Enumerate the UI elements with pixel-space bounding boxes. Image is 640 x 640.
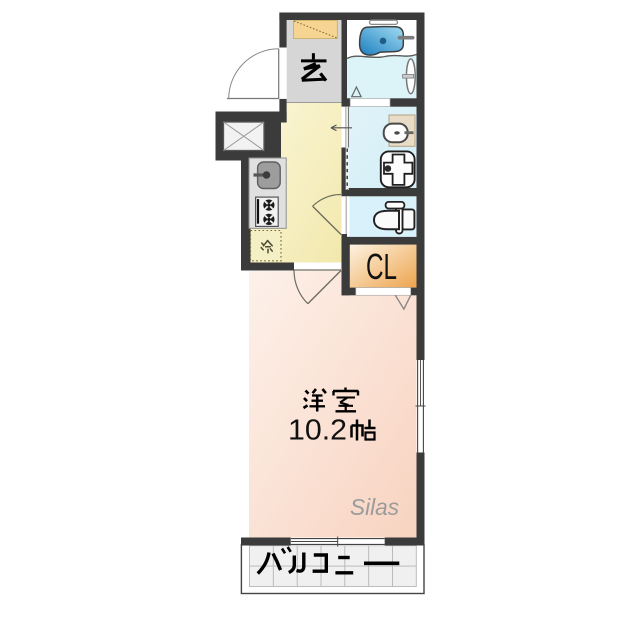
svg-text:Silas: Silas	[350, 494, 399, 520]
svg-text:10.2: 10.2	[288, 415, 347, 447]
svg-text:CL: CL	[366, 246, 397, 287]
